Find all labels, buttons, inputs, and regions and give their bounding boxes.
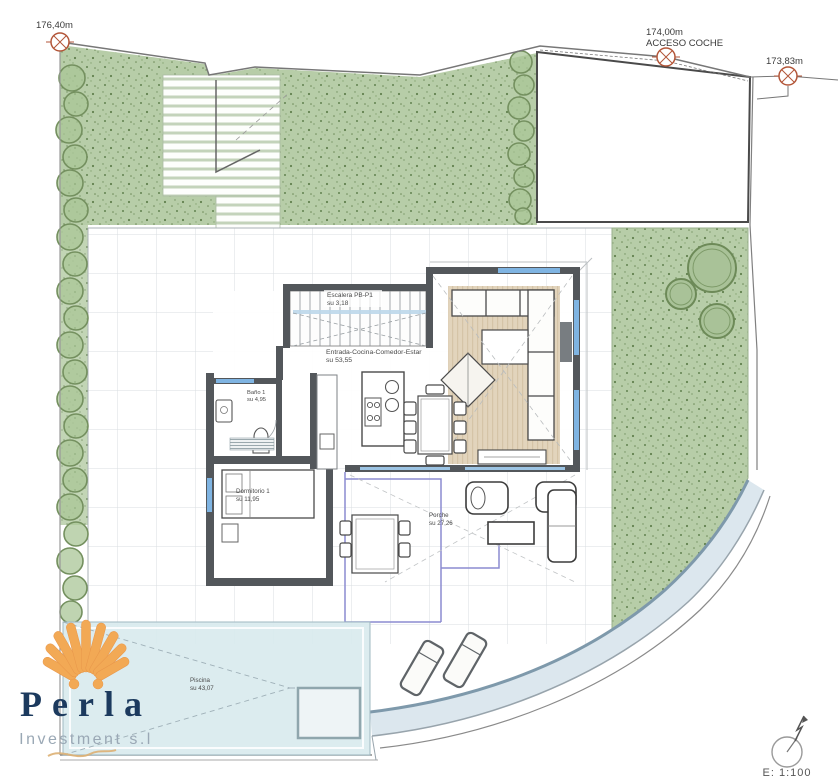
- marker-label-2a: 174,00m: [646, 27, 683, 38]
- spa-steps: [298, 688, 360, 738]
- counter-sink-icon: [320, 434, 334, 449]
- island-sink-icon: [386, 399, 399, 412]
- dining-table: [418, 396, 452, 454]
- label-piscina-area: su 43,07: [190, 685, 214, 692]
- label-dormitorio-area: su 11,95: [236, 496, 260, 503]
- marker-label-2b: ACCESO COCHE: [646, 38, 723, 49]
- floor-plan-canvas: 176,40m 174,00m ACCESO COCHE 173,83m: [0, 0, 840, 783]
- label-porche-area: su 27,26: [429, 520, 453, 527]
- logo-subtitle-text: Investment s.l: [19, 731, 153, 748]
- kitchen-island: [362, 372, 404, 446]
- kitchen-counter: [317, 375, 337, 469]
- tree-icon: [688, 244, 736, 292]
- label-piscina-name: Piscina: [190, 677, 211, 684]
- scale-label: E: 1:100: [763, 767, 812, 779]
- label-bano-area: su 4,95: [247, 397, 266, 403]
- parking-area: [537, 52, 750, 222]
- cooktop-icon: [365, 398, 381, 426]
- lounger: [399, 639, 445, 697]
- nightstand: [222, 524, 238, 542]
- label-escalera-name: Escalera PB-P1: [327, 292, 373, 299]
- outdoor-table: [352, 515, 398, 573]
- label-dormitorio-name: Dormitorio 1: [236, 488, 270, 495]
- north-arrow: [772, 716, 808, 767]
- label-salon-area: su 53,55: [326, 357, 352, 364]
- stair-window-strip: [293, 310, 426, 314]
- marker-label-1: 176,40m: [36, 20, 73, 31]
- label-bano-name: Baño 1: [247, 390, 265, 396]
- shower-strip: [230, 438, 274, 450]
- logo-brand-text: Perla: [20, 684, 152, 724]
- label-escalera-area: su 3,18: [327, 300, 349, 307]
- tree-icon: [666, 279, 696, 309]
- marker-label-3: 173,83m: [766, 56, 803, 67]
- coffee-table: [482, 330, 528, 364]
- tv-unit: [560, 322, 572, 362]
- bath-sink-icon: [216, 400, 232, 422]
- site-plan-drawing: 176,40m 174,00m ACCESO COCHE 173,83m: [0, 0, 840, 783]
- living-room: [433, 276, 572, 464]
- survey-marker-1: 176,40m: [36, 20, 74, 51]
- label-salon-name: Entrada-Cocina-Comedor-Estar: [326, 349, 422, 356]
- survey-marker-2: 174,00m ACCESO COCHE: [646, 27, 723, 66]
- porch-coffee-table: [488, 522, 534, 544]
- label-porche-name: Porche: [429, 512, 449, 519]
- tree-icon: [700, 304, 734, 338]
- island-sink-icon: [386, 381, 399, 394]
- survey-marker-3: 173,83m: [766, 56, 803, 85]
